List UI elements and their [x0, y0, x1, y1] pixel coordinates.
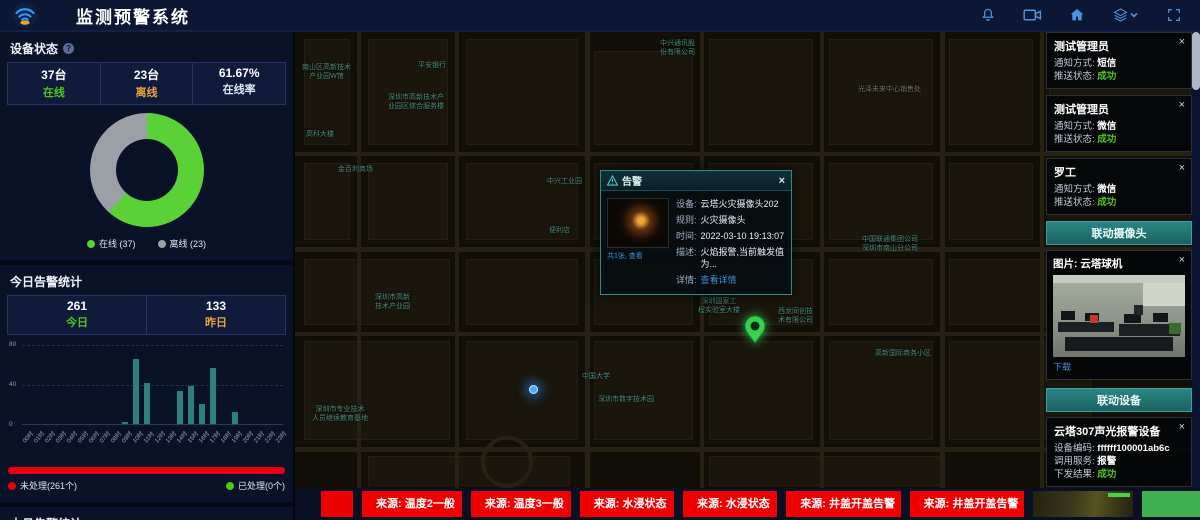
- notification-card-field-label: 通知方式:: [1054, 121, 1097, 132]
- today-stat-box: 133昨日: [147, 295, 286, 335]
- map-building: [369, 40, 447, 144]
- hour-bar-slot: [198, 344, 206, 424]
- notification-card-field-value: 成功: [1097, 197, 1116, 208]
- app-root: 监测预警系统 设备状态 ? 37台在线23台离线61.67%: [0, 0, 1200, 520]
- popup-field: 规则:火灾摄像头: [676, 214, 785, 226]
- camera-snapshot[interactable]: [1053, 275, 1185, 357]
- device-stat-label: 在线: [8, 84, 100, 100]
- y-axis-tick: 0: [9, 421, 13, 428]
- processed-legend: 未处理(261个) 已处理(0个): [8, 479, 285, 492]
- popup-field-label: 详情:: [676, 274, 697, 286]
- device-card-field-value: 报警: [1097, 456, 1116, 467]
- month-alerts-title: 本月告警统计: [10, 515, 82, 520]
- alert-ticker-image[interactable]: [1033, 491, 1133, 517]
- alert-ticker-item[interactable]: 来源: 水浸状态: [580, 491, 674, 517]
- photo-monitor: [1061, 311, 1076, 320]
- close-icon[interactable]: ×: [1179, 36, 1185, 48]
- hour-bar-slot: [121, 344, 129, 424]
- popup-field: 设备:云塔火灾摄像头202: [676, 198, 785, 210]
- map-label: 金百利商场: [338, 166, 373, 175]
- alert-ticker-item[interactable]: 来源: 水浸状态: [683, 491, 777, 517]
- device-card: ×云塔307声光报警设备设备编码: ffffff100001ab6c调用服务: …: [1046, 417, 1192, 487]
- alert-popup: 告警 × 共1张, 查看 设备:云塔火灾摄像头202规则:火灾摄像头时间:202…: [600, 170, 792, 295]
- hour-bar-slot: [44, 344, 52, 424]
- legend-dot-icon: [158, 240, 166, 248]
- notification-card-field-value: 成功: [1097, 134, 1116, 145]
- device-card-field: 设备编码: ffffff100001ab6c: [1054, 442, 1184, 455]
- device-card-field-label: 下发结果:: [1054, 469, 1097, 480]
- map-building: [950, 164, 1032, 239]
- map-road: [1040, 32, 1044, 488]
- map-label: 深圳国家工 程实验室大楼: [698, 298, 740, 315]
- map-road: [940, 32, 945, 488]
- notification-card: ×罗工通知方式: 微信推送状态: 成功: [1046, 158, 1192, 215]
- hour-bar-slot: [143, 344, 151, 424]
- info-icon[interactable]: ?: [63, 43, 74, 54]
- today-stat-label: 今日: [8, 314, 146, 330]
- hour-bar-slot: [231, 344, 239, 424]
- device-card-field-value: ffffff100001ab6c: [1097, 443, 1169, 454]
- donut-legend: 在线 (37)离线 (23): [87, 237, 206, 250]
- device-status-stats: 37台在线23台离线61.67%在线率: [7, 62, 286, 105]
- hour-bar-slot: [154, 344, 162, 424]
- device-card-field: 下发结果: 成功: [1054, 468, 1184, 481]
- device-stat-label: 离线: [101, 84, 193, 100]
- photo-plant: [1169, 323, 1181, 334]
- notification-card-field: 通知方式: 微信: [1054, 120, 1184, 133]
- popup-field-label: 描述:: [676, 246, 697, 270]
- device-card-field: 调用服务: 报警: [1054, 455, 1184, 468]
- close-icon[interactable]: ×: [779, 175, 785, 187]
- map-label: 西龙同创技 术有限公司: [778, 308, 813, 325]
- close-icon[interactable]: ×: [1179, 99, 1185, 111]
- device-status-header: 设备状态 ?: [0, 32, 293, 62]
- hour-bar: [188, 386, 194, 424]
- donut-legend-label: 离线 (23): [170, 237, 207, 250]
- map-road: [585, 32, 590, 488]
- hour-bar: [144, 383, 150, 424]
- unprocessed-label: 未处理(261个): [20, 479, 77, 492]
- hour-bar-slot: [253, 344, 261, 424]
- notification-card-field-label: 推送状态:: [1054, 71, 1097, 82]
- notification-card: ×测试管理员通知方式: 微信推送状态: 成功: [1046, 95, 1192, 152]
- today-stat-label: 昨日: [147, 314, 285, 330]
- device-stat-value: 37台: [8, 66, 100, 83]
- close-icon[interactable]: ×: [1179, 421, 1185, 433]
- right-panel: ×测试管理员通知方式: 短信推送状态: 成功×测试管理员通知方式: 微信推送状态…: [1046, 32, 1192, 520]
- alert-ticker-image[interactable]: [1142, 491, 1200, 517]
- alert-popup-body: 共1张, 查看 设备:云塔火灾摄像头202规则:火灾摄像头时间:2022-03-…: [601, 191, 791, 294]
- hour-bar-slot: [99, 344, 107, 424]
- hour-bar-slot: [209, 344, 217, 424]
- map-label: 高新国际商务小区: [875, 350, 931, 359]
- map-building: [305, 342, 449, 439]
- hour-bar-slot: [66, 344, 74, 424]
- device-status-donut-chart: 在线 (37)离线 (23): [0, 113, 293, 250]
- map-building: [467, 40, 577, 144]
- close-icon[interactable]: ×: [1179, 162, 1185, 174]
- hour-bar-slot: [176, 344, 184, 424]
- device-card-field-label: 设备编码:: [1054, 443, 1097, 454]
- device-card-name: 云塔307声光报警设备: [1054, 423, 1184, 439]
- notification-card-field-label: 通知方式:: [1054, 58, 1097, 69]
- notification-card-field-value: 成功: [1097, 71, 1116, 82]
- map-building: [305, 40, 349, 144]
- left-panel: 设备状态 ? 37台在线23台离线61.67%在线率 在线 (37)离线 (23…: [0, 32, 295, 520]
- processed-label: 已处理(0个): [238, 479, 285, 492]
- map-label: 中兴通讯股 份有限公司: [660, 40, 695, 57]
- map-building: [305, 164, 349, 239]
- today-alerts-header: 今日告警统计: [0, 265, 293, 295]
- alert-popup-header: 告警 ×: [601, 171, 791, 191]
- map-building: [595, 342, 692, 439]
- legend-dot-icon: [87, 240, 95, 248]
- hour-bar-slot: [22, 344, 30, 424]
- alert-fields: 设备:云塔火灾摄像头202规则:火灾摄像头时间:2022-03-10 19:13…: [676, 198, 785, 286]
- map-label: 高科大楼: [306, 131, 334, 140]
- photo-ceiling: [1053, 275, 1185, 283]
- device-stat-value: 23台: [101, 66, 193, 83]
- notification-card-name: 测试管理员: [1054, 101, 1184, 117]
- notification-card-field-value: 微信: [1097, 121, 1116, 132]
- hour-bar-slot: [33, 344, 41, 424]
- hour-bar-slot: [88, 344, 96, 424]
- device-stat-label: 在线率: [193, 81, 285, 97]
- hour-bar: [177, 391, 183, 424]
- hour-bar-slot: [220, 344, 228, 424]
- hour-bar-slot: [132, 344, 140, 424]
- hour-bar-slot: [242, 344, 250, 424]
- download-link[interactable]: 下载: [1053, 360, 1071, 373]
- device-card-field-value: 成功: [1097, 469, 1116, 480]
- photo-desk: [1065, 337, 1173, 351]
- map-building: [595, 52, 692, 144]
- map-building: [369, 457, 569, 485]
- top-bar: 监测预警系统: [0, 0, 1200, 32]
- hour-bar: [210, 368, 216, 424]
- notification-stack: ×测试管理员通知方式: 短信推送状态: 成功×测试管理员通知方式: 微信推送状态…: [1046, 32, 1192, 215]
- green-dot-icon: [226, 482, 234, 490]
- alert-popup-title: 告警: [622, 173, 642, 188]
- popup-detail-link[interactable]: 查看详情: [701, 274, 737, 286]
- hour-bar: [133, 359, 139, 424]
- map-building: [467, 342, 577, 439]
- map-label: 平安银行: [418, 62, 446, 71]
- image-highlight: [1108, 493, 1130, 497]
- notification-card-name: 罗工: [1054, 164, 1184, 180]
- donut-legend-item: 离线 (23): [158, 237, 207, 250]
- map-label: 深圳市数字技术园: [598, 396, 654, 405]
- popup-field-value: 火灾摄像头: [701, 214, 746, 226]
- device-stat-box: 61.67%在线率: [193, 62, 286, 105]
- alert-ticker-item[interactable]: 来源: 井盖开盖告警: [910, 491, 1024, 517]
- x-axis-labels: 00时01时02时03时04时05时06时07时08时09时10时11时12时1…: [22, 429, 283, 443]
- hour-bar-slot: [187, 344, 195, 424]
- alert-ticker-item[interactable]: [321, 491, 353, 517]
- popup-field-value: 云塔火灾摄像头202: [701, 198, 779, 210]
- alert-snapshot-image[interactable]: [607, 198, 669, 248]
- donut-legend-item: 在线 (37): [87, 237, 136, 250]
- scrollbar-thumb[interactable]: [1192, 32, 1200, 90]
- device-status-title: 设备状态: [10, 40, 58, 57]
- notification-card-field: 推送状态: 成功: [1054, 133, 1184, 146]
- popup-field-label: 设备:: [676, 198, 697, 210]
- today-stat-box: 261今日: [7, 295, 147, 335]
- hour-bar: [199, 404, 205, 424]
- map-building: [305, 260, 449, 324]
- today-alerts-title: 今日告警统计: [10, 273, 82, 290]
- notification-card-field-label: 推送状态:: [1054, 134, 1097, 145]
- app-logo-icon: [12, 2, 38, 28]
- map-label: 南山区高新技术 产业园W馆: [302, 64, 351, 81]
- map-roundabout: [481, 436, 533, 488]
- device-stat-box: 37台在线: [7, 62, 101, 105]
- hour-bar-slot: [264, 344, 272, 424]
- hour-bar-slot: [165, 344, 173, 424]
- notification-card-field-label: 推送状态:: [1054, 197, 1097, 208]
- unprocessed-progress-bar: [8, 467, 285, 474]
- photo-person: [1134, 305, 1143, 316]
- map-pin-icon[interactable]: [742, 314, 768, 344]
- today-stat-value: 261: [8, 299, 146, 313]
- donut-legend-label: 在线 (37): [99, 237, 136, 250]
- processed-legend-item: 已处理(0个): [226, 479, 285, 492]
- map-label: 中国联通集团公司 深圳市南山分公司: [862, 236, 918, 253]
- y-axis-tick: 80: [9, 341, 16, 348]
- map-building: [467, 260, 577, 324]
- notification-card: ×测试管理员通知方式: 短信推送状态: 成功: [1046, 32, 1192, 89]
- fullscreen-icon[interactable]: [1166, 7, 1182, 23]
- video-camera-icon[interactable]: [1023, 7, 1042, 23]
- alert-ticker-item[interactable]: 来源: 温度3一般: [471, 491, 571, 517]
- map-label: 深圳市专业技术 人员继续教育基地: [312, 406, 368, 423]
- today-stat-value: 133: [147, 299, 285, 313]
- hour-bar-slot: [55, 344, 63, 424]
- home-icon[interactable]: [1069, 7, 1085, 23]
- popup-field: 描述:火焰报警,当前触发值为...: [676, 246, 785, 270]
- photo-person: [1090, 315, 1098, 323]
- alert-ticker-item[interactable]: 来源: 温度2一般: [362, 491, 462, 517]
- notification-card-field: 通知方式: 短信: [1054, 57, 1184, 70]
- layers-icon[interactable]: [1112, 7, 1139, 23]
- chevron-down-icon: [1129, 10, 1139, 20]
- popup-field: 时间:2022-03-10 19:13:07: [676, 230, 785, 242]
- alert-snapshot-links[interactable]: 共1张, 查看: [607, 251, 669, 261]
- y-axis-tick: 40: [9, 381, 16, 388]
- photo-desk: [1058, 322, 1113, 332]
- linked-camera-header: 联动摄像头: [1046, 221, 1192, 245]
- map-label: 便利店: [549, 227, 570, 236]
- notification-card-field: 通知方式: 微信: [1054, 183, 1184, 196]
- camera-card: × 图片: 云塔球机 下载: [1046, 250, 1192, 380]
- device-card-field-label: 调用服务:: [1054, 456, 1097, 467]
- donut-chart: [90, 113, 204, 227]
- map-road: [820, 32, 824, 488]
- alert-ticker-item[interactable]: 来源: 井盖开盖告警: [786, 491, 900, 517]
- notification-card-field-label: 通知方式:: [1054, 184, 1097, 195]
- popup-field-value: 2022-03-10 19:13:07: [701, 230, 785, 242]
- notification-card-field-value: 短信: [1097, 58, 1116, 69]
- map-building: [830, 164, 932, 239]
- map-label: 深圳市高新技术产 业园区综合服务楼: [388, 94, 444, 111]
- warning-icon: [607, 175, 618, 186]
- scrollbar-track[interactable]: [1192, 32, 1200, 488]
- page-title: 监测预警系统: [76, 3, 190, 28]
- hour-bar-slot: [77, 344, 85, 424]
- map-building: [710, 457, 940, 485]
- popup-field: 详情:查看详情: [676, 274, 785, 286]
- photo-monitor: [1153, 313, 1168, 322]
- red-dot-icon: [8, 482, 16, 490]
- notification-card-field-value: 微信: [1097, 184, 1116, 195]
- popup-field-label: 时间:: [676, 230, 697, 242]
- notification-bell-icon[interactable]: [980, 7, 996, 24]
- device-location-dot[interactable]: [529, 385, 538, 394]
- map-road: [455, 32, 459, 488]
- notification-card-name: 测试管理员: [1054, 38, 1184, 54]
- camera-card-title: 图片: 云塔球机: [1053, 256, 1185, 271]
- unprocessed-legend-item: 未处理(261个): [8, 479, 77, 492]
- map-building: [710, 342, 812, 439]
- alert-ticker: 来源: 温度2一般来源: 温度3一般来源: 水浸状态来源: 水浸状态来源: 井盖…: [295, 488, 1200, 520]
- hour-bar: [122, 422, 128, 424]
- map-label: 中兴工业园: [547, 178, 582, 187]
- close-icon[interactable]: ×: [1179, 254, 1185, 266]
- map-label: 中国大学: [582, 373, 610, 382]
- map-building: [710, 40, 812, 144]
- top-icon-group: [980, 7, 1182, 24]
- popup-field-label: 规则:: [676, 214, 697, 226]
- map-label: 光泽未来中心销售处: [858, 86, 921, 95]
- device-stat-box: 23台离线: [101, 62, 194, 105]
- today-alerts-stats: 261今日133昨日: [7, 295, 286, 335]
- map-building: [830, 260, 932, 324]
- map-label: 深圳市高新 技术产业园: [375, 294, 410, 311]
- map-building: [369, 164, 447, 239]
- device-stat-value: 61.67%: [193, 66, 285, 80]
- alert-thumb-col: 共1张, 查看: [607, 198, 669, 286]
- bar-series: [22, 345, 283, 425]
- notification-card-field: 推送状态: 成功: [1054, 70, 1184, 83]
- hour-bar-slot: [110, 344, 118, 424]
- map-building: [950, 40, 1032, 144]
- linked-devices-header: 联动设备: [1046, 388, 1192, 412]
- hour-bar: [232, 412, 238, 424]
- month-alerts-header: 本月告警统计: [0, 507, 293, 520]
- hour-bar-slot: [275, 344, 283, 424]
- popup-field-value: 火焰报警,当前触发值为...: [701, 246, 785, 270]
- hourly-alert-bar-chart: 80 40 0 00时01时02时03时04时05时06时07时08时09时10…: [6, 339, 287, 461]
- notification-card-field: 推送状态: 成功: [1054, 196, 1184, 209]
